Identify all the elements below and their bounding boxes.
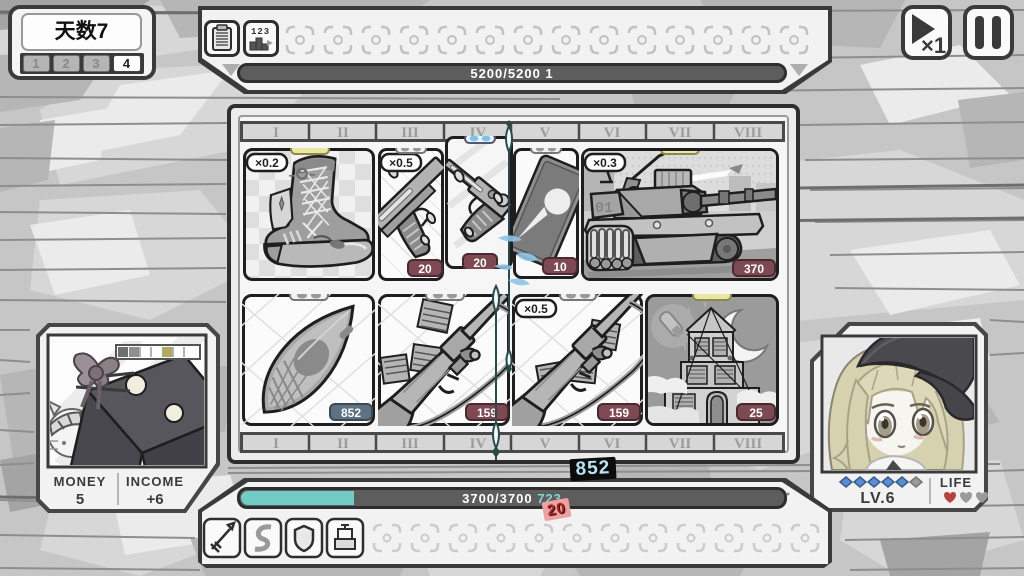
svg-text:20: 20 xyxy=(473,256,487,269)
svg-text:×0.2: ×0.2 xyxy=(255,156,279,170)
svg-text:V: V xyxy=(540,125,551,141)
svg-text:159: 159 xyxy=(609,406,629,420)
svg-text:01: 01 xyxy=(595,200,613,217)
svg-text:LIFE: LIFE xyxy=(940,475,972,490)
svg-text:VIII: VIII xyxy=(734,125,763,141)
svg-text:II: II xyxy=(337,436,349,452)
svg-text:20: 20 xyxy=(418,262,432,276)
svg-text:VI: VI xyxy=(604,436,621,452)
svg-text:5: 5 xyxy=(76,491,84,508)
svg-text:V: V xyxy=(540,436,551,452)
svg-text:VIII: VIII xyxy=(734,436,763,452)
svg-text:IV: IV xyxy=(470,436,487,452)
svg-text:II: II xyxy=(337,125,349,141)
svg-text:370: 370 xyxy=(744,262,764,276)
svg-text:VI: VI xyxy=(604,125,621,141)
svg-text:VII: VII xyxy=(669,125,692,141)
svg-text:123: 123 xyxy=(251,27,270,37)
svg-text:×1: ×1 xyxy=(921,33,946,58)
svg-text:INCOME: INCOME xyxy=(126,474,184,489)
svg-text:MONEY: MONEY xyxy=(54,474,107,489)
svg-text:+6: +6 xyxy=(146,491,163,508)
svg-text:852: 852 xyxy=(341,406,361,420)
svg-text:VII: VII xyxy=(669,436,692,452)
svg-text:III: III xyxy=(401,125,419,141)
svg-text:I: I xyxy=(273,125,279,141)
svg-text:×0.3: ×0.3 xyxy=(593,156,617,170)
svg-text:10: 10 xyxy=(553,260,567,274)
svg-text:LV.6: LV.6 xyxy=(860,490,895,507)
svg-text:I: I xyxy=(273,436,279,452)
svg-text:×0.5: ×0.5 xyxy=(389,156,413,170)
svg-text:×0.5: ×0.5 xyxy=(524,302,548,316)
svg-text:25: 25 xyxy=(749,406,763,420)
svg-text:III: III xyxy=(401,436,419,452)
